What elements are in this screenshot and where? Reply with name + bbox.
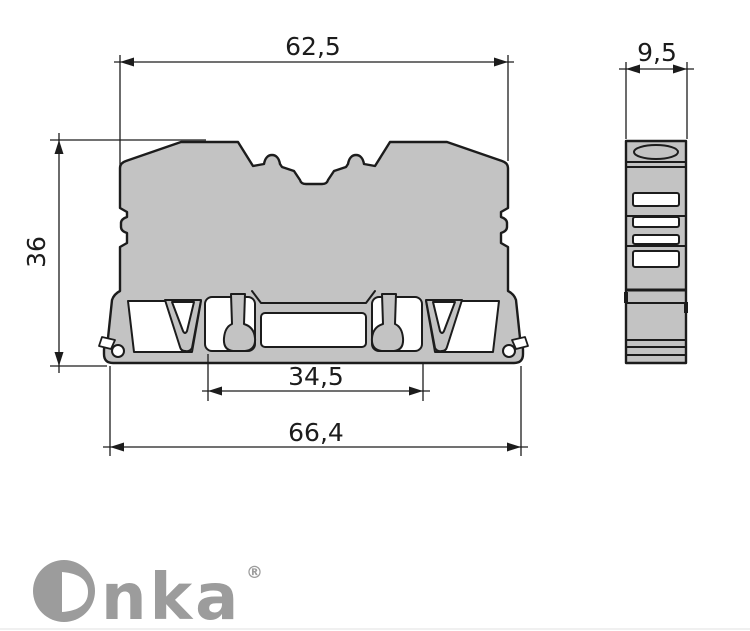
- arrowhead-left-icon: [208, 387, 222, 396]
- marking-window: [633, 251, 679, 267]
- dimension-label-height: 36: [22, 236, 51, 268]
- drawing-canvas: 62,5 9,5 36 34,5: [0, 0, 750, 631]
- logo-wordmark: nka: [101, 561, 241, 631]
- wire-entry-opening: [634, 145, 678, 159]
- rail-clip-nub-right: [684, 302, 688, 313]
- marking-window: [633, 217, 679, 227]
- dimension-label-rail-slot: 34,5: [288, 362, 344, 391]
- arrowhead-right-icon: [409, 387, 423, 396]
- terminal-block-technical-drawing: 62,5 9,5 36 34,5: [0, 0, 750, 631]
- arrowhead-down-icon: [55, 352, 64, 366]
- marking-window: [633, 235, 679, 244]
- arrowhead-left-icon: [110, 443, 124, 452]
- front-view-drawing: [99, 142, 528, 363]
- side-view-drawing: [624, 141, 688, 363]
- dimension-label-total-width: 66,4: [288, 418, 344, 447]
- marking-window: [633, 193, 679, 206]
- arrowhead-right-icon: [494, 58, 508, 67]
- registered-trademark-icon: ®: [246, 563, 263, 583]
- rail-channel-cutout: [261, 313, 366, 347]
- dimension-side-width: 9,5: [619, 38, 694, 139]
- dimension-label-top-width: 62,5: [285, 32, 341, 61]
- arrowhead-up-icon: [55, 140, 64, 154]
- brand-logo: nka ®: [33, 560, 263, 631]
- dimension-label-side-width: 9,5: [637, 38, 677, 67]
- rail-clip-nub-left: [624, 292, 628, 303]
- arrowhead-left-icon: [120, 58, 134, 67]
- arrowhead-right-icon: [507, 443, 521, 452]
- flange-curl-hole-left: [112, 345, 124, 357]
- flange-curl-hole-right: [503, 345, 515, 357]
